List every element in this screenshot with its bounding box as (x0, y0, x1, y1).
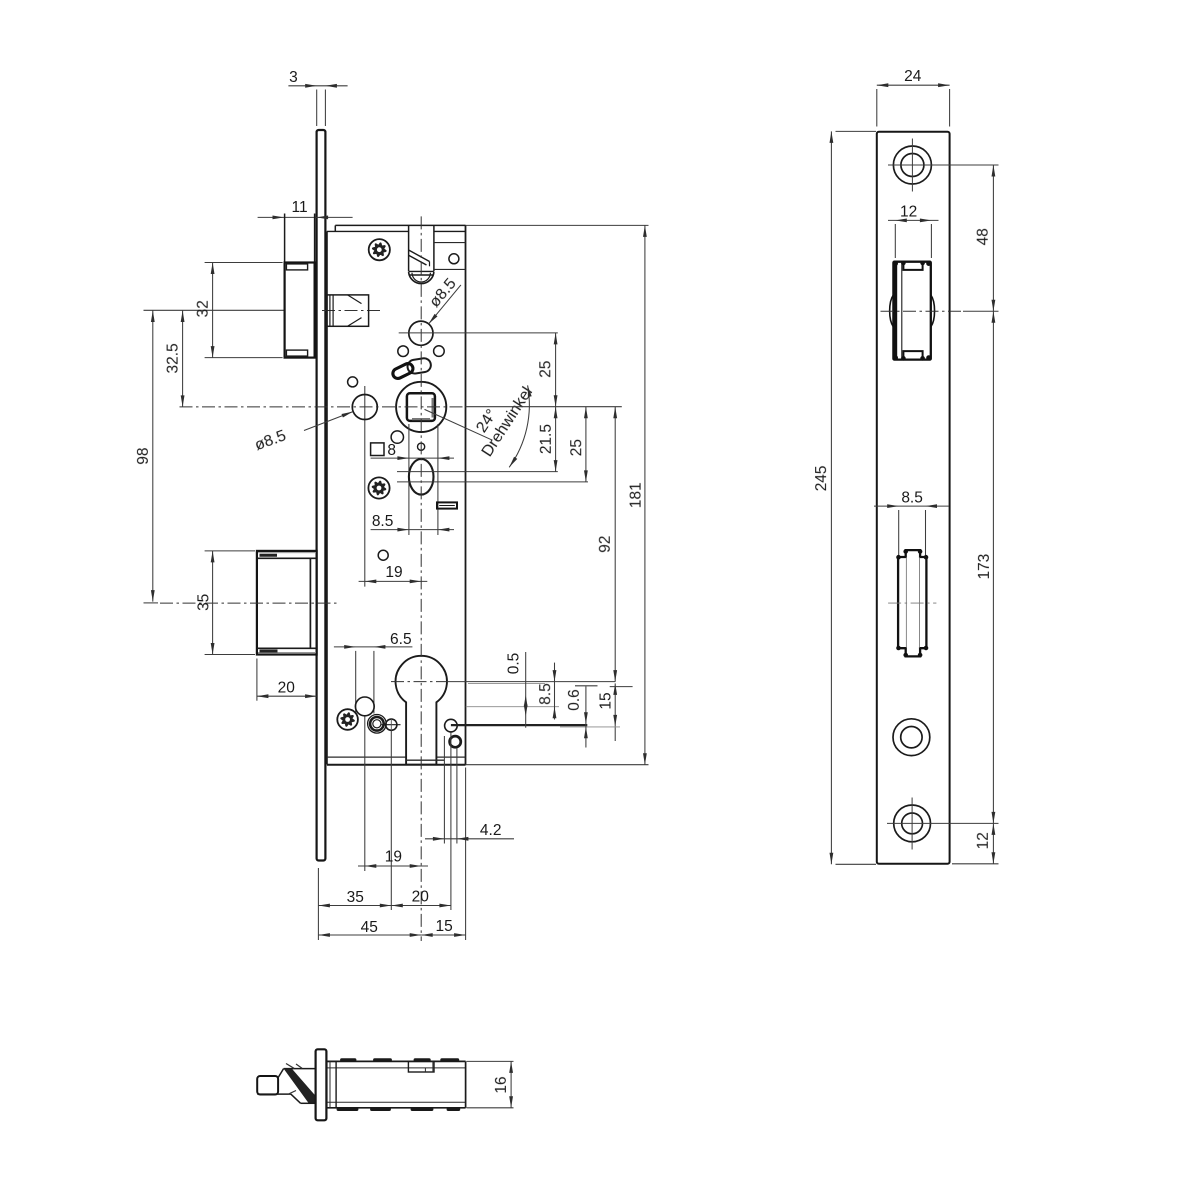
svg-text:8.5: 8.5 (372, 513, 394, 530)
svg-text:32.5: 32.5 (165, 343, 182, 373)
svg-text:4.2: 4.2 (480, 822, 502, 839)
svg-text:25: 25 (538, 361, 555, 378)
svg-text:8.5: 8.5 (537, 683, 554, 705)
svg-text:11: 11 (292, 199, 308, 216)
svg-text:181: 181 (627, 482, 644, 508)
svg-text:35: 35 (195, 594, 212, 611)
svg-text:19: 19 (385, 564, 402, 581)
svg-text:98: 98 (135, 447, 152, 464)
svg-text:21.5: 21.5 (538, 424, 555, 454)
svg-text:15: 15 (435, 918, 452, 935)
svg-text:6.5: 6.5 (390, 631, 412, 648)
svg-text:92: 92 (597, 536, 614, 553)
svg-text:24: 24 (904, 68, 922, 85)
svg-text:12: 12 (900, 204, 917, 221)
svg-text:3: 3 (289, 69, 298, 86)
svg-text:16: 16 (493, 1076, 510, 1093)
svg-text:173: 173 (976, 554, 993, 580)
svg-text:35: 35 (347, 889, 364, 906)
svg-text:0.6: 0.6 (566, 689, 583, 711)
svg-text:48: 48 (975, 228, 992, 245)
svg-text:12: 12 (975, 832, 992, 849)
svg-text:20: 20 (278, 679, 296, 696)
svg-text:20: 20 (412, 888, 430, 905)
svg-text:8.5: 8.5 (901, 490, 923, 507)
svg-text:0.5: 0.5 (506, 653, 523, 675)
svg-text:25: 25 (568, 439, 585, 456)
svg-text:19: 19 (385, 849, 402, 866)
svg-text:45: 45 (361, 919, 378, 936)
svg-text:15: 15 (598, 692, 615, 709)
svg-text:8: 8 (387, 442, 396, 459)
svg-text:32: 32 (195, 300, 212, 317)
svg-text:245: 245 (813, 465, 830, 491)
